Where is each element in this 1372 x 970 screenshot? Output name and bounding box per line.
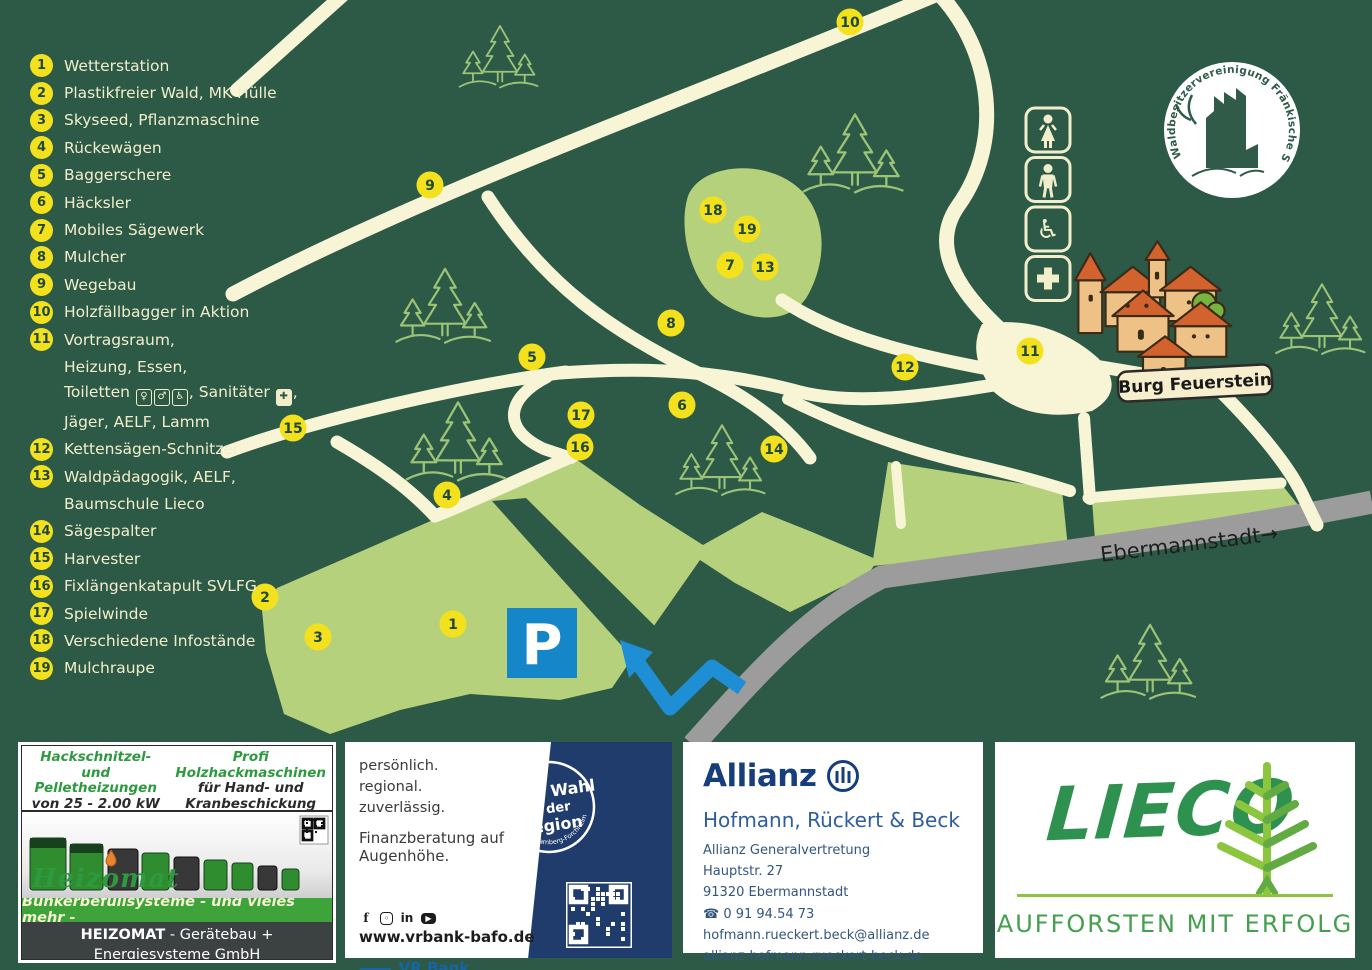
facebook-icon: f	[359, 911, 373, 925]
svg-text:10: 10	[840, 15, 860, 31]
map-marker-13: 13	[752, 254, 779, 281]
heizomat-footer: HEIZOMAT - Gerätebau + Energiesysteme Gm…	[22, 922, 332, 960]
svg-text:13: 13	[755, 260, 774, 276]
legend-item: 9Wegebau	[30, 271, 298, 298]
map-marker-3: 3	[305, 624, 332, 651]
svg-text:4: 4	[442, 488, 452, 504]
map-marker-8: 8	[658, 310, 685, 337]
tree-cluster-icon	[1276, 284, 1364, 354]
legend-item: 7Mobiles Sägewerk	[30, 216, 298, 243]
legend-item: 2Plastikfreier Wald, MK Hülle	[30, 79, 298, 106]
map-marker-12: 12	[892, 354, 919, 381]
map-marker-9: 9	[417, 172, 444, 199]
legend-item-label: Kettensägen-Schnitzer	[64, 440, 239, 458]
legend-marker-number: 6	[30, 191, 53, 214]
first-aid-icon: ✚	[276, 389, 292, 406]
legend-item-label: Baumschule Lieco	[64, 495, 205, 513]
legend-item-label: Wegebau	[64, 276, 137, 294]
legend-item-label: Baggerschere	[64, 166, 171, 184]
legend-marker-number: 2	[30, 82, 53, 105]
legend-marker-number: 9	[30, 273, 53, 296]
legend-item: 13Waldpädagogik, AELF,	[30, 463, 298, 490]
legend-marker-number: 10	[30, 301, 53, 324]
legend-item: 14Sägespalter	[30, 518, 298, 545]
tree-cluster-icon	[676, 425, 764, 495]
heizomat-header: Hackschnitzel- und Pelletheizungen von 2…	[22, 746, 332, 812]
flame-icon	[104, 850, 118, 868]
legend-marker-number: 12	[30, 438, 53, 461]
tree-cluster-icon	[407, 402, 506, 480]
legend-item-label: Fixlängenkatapult SVLFG	[64, 577, 257, 595]
svg-text:1: 1	[448, 617, 458, 633]
legend-item-label: Skyseed, Pflanzmaschine	[64, 111, 260, 129]
heizomat-company-name: HEIZOMAT	[81, 927, 166, 943]
legend-marker-number: 16	[30, 575, 53, 598]
first-aid-icon	[1026, 257, 1070, 301]
svg-text:19: 19	[737, 222, 756, 238]
youtube-icon: ▶	[421, 913, 436, 924]
legend-marker-number: 3	[30, 109, 53, 132]
heizomat-header-left: Hackschnitzel- und Pelletheizungen von 2…	[22, 746, 169, 810]
legend-item: 6Häcksler	[30, 189, 298, 216]
legend-item: 16Fixlängenkatapult SVLFG	[30, 572, 298, 599]
legend-marker-number: 15	[30, 547, 53, 570]
svg-text:8: 8	[666, 316, 676, 332]
legend-item-continuation: Jäger, AELF, Lamm	[30, 408, 298, 435]
svg-text:16: 16	[570, 440, 589, 456]
ad-allianz: Allianz Hofmann, Rückert & Beck Allianz …	[683, 742, 983, 953]
legend: 1Wetterstation2Plastikfreier Wald, MK Hü…	[30, 52, 298, 682]
allianz-logo: Allianz	[703, 758, 963, 794]
allianz-city: 91320 Ebermannstadt	[703, 882, 963, 903]
legend-item: 15Harvester	[30, 545, 298, 572]
map-marker-1: 1	[440, 611, 467, 638]
map-marker-18: 18	[700, 197, 727, 224]
ad-lieco: LIECO AUFFORSTEN MIT ERFOLG	[995, 742, 1355, 958]
heizomat-headline: Pelletheizungen	[28, 781, 163, 797]
instagram-icon: ◦	[380, 912, 393, 925]
svg-text:11: 11	[1020, 344, 1039, 360]
legend-item: 4Rückewägen	[30, 134, 298, 161]
vrbank-logo: VR Bank Bamberg-Forchheim	[359, 960, 549, 970]
svg-text:3: 3	[313, 630, 323, 646]
wheelchair-icon: ♿	[1026, 207, 1070, 251]
map-marker-17: 17	[568, 402, 595, 429]
map-marker-19: 19	[734, 216, 761, 243]
ad-vrbank: persönlich. regional. zuverlässig. Finan…	[345, 742, 672, 958]
legend-marker-number: 1	[30, 54, 53, 77]
legend-marker-number: 13	[30, 465, 53, 488]
allianz-street: Hauptstr. 27	[703, 861, 963, 882]
svg-text:6: 6	[677, 398, 687, 414]
map-marker-7: 7	[717, 252, 744, 279]
wheelchair-icon: ♿	[172, 389, 188, 406]
phone-icon: ☎	[703, 907, 723, 922]
svg-text:7: 7	[725, 258, 735, 274]
vrbank-badge: Erste Wahl in der Region VR Bank Bamberg…	[494, 752, 604, 862]
map-marker-5: 5	[519, 344, 546, 371]
legend-item-label: Harvester	[64, 550, 140, 568]
map-marker-10: 10	[837, 9, 864, 36]
allianz-agency-name: Hofmann, Rückert & Beck	[703, 808, 963, 832]
map-marker-4: 4	[434, 482, 461, 509]
heizomat-header-right: Profi Holzhackmaschinen für Hand- und Kr…	[169, 746, 332, 810]
legend-item-label: Verschiedene Infostände	[64, 632, 255, 650]
heizomat-banner: Bunkerbefüllsysteme - und vieles mehr -	[22, 898, 332, 922]
legend-item: 17Spielwinde	[30, 600, 298, 627]
heizomat-product-image: Heizomat	[22, 812, 332, 898]
lieco-tree-icon	[1207, 748, 1327, 898]
legend-marker-number: 5	[30, 164, 53, 187]
legend-item: 1Wetterstation	[30, 52, 298, 79]
legend-item-label: Häcksler	[64, 194, 131, 212]
legend-marker-number: 17	[30, 602, 53, 625]
svg-text:♿: ♿	[1036, 215, 1059, 245]
vrbank-social-icons: f ◦ in ▶	[359, 911, 549, 925]
map-marker-6: 6	[669, 392, 696, 419]
svg-text:17: 17	[571, 408, 590, 424]
tree-cluster-icon	[1101, 625, 1195, 699]
tree-cluster-icon	[804, 114, 903, 192]
legend-item: 3Skyseed, Pflanzmaschine	[30, 107, 298, 134]
legend-marker-number: 8	[30, 246, 53, 269]
heizomat-subline: für Hand- und	[175, 781, 326, 797]
legend-item-label: Jäger, AELF, Lamm	[64, 413, 210, 431]
heizomat-subline: von 25 - 2.00 kW	[28, 797, 163, 813]
allianz-phone-row: ☎ 0 91 94.54 73	[703, 904, 963, 925]
field-exhibit-blob	[684, 168, 821, 317]
map-marker-11: 11	[1017, 338, 1044, 365]
heizomat-logo: Heizomat	[32, 864, 179, 894]
legend-item-label: Rückewägen	[64, 139, 162, 157]
legend-item: 19Mulchraupe	[30, 655, 298, 682]
legend-item-continuation: Baumschule Lieco	[30, 490, 298, 517]
linkedin-icon: in	[400, 911, 414, 925]
vrbank-website: www.vrbank-bafo.de	[359, 928, 549, 946]
allianz-role: Allianz Generalvertretung	[703, 840, 963, 861]
legend-marker-number: 19	[30, 657, 53, 680]
allianz-emblem-icon	[826, 759, 860, 793]
burg-feuerstein-label: Burg Feuerstein	[1117, 364, 1272, 402]
road-junction	[976, 322, 1111, 415]
map-marker-16: 16	[567, 434, 594, 461]
allianz-website: allianz-hofmann-rueckert-beck.de	[703, 946, 963, 967]
legend-item-continuation: Toiletten ♀♂♿, Sanitäter ✚,	[30, 381, 298, 408]
lieco-slogan: AUFFORSTEN MIT ERFOLG	[995, 910, 1355, 938]
legend-item-label: Mulcher	[64, 248, 126, 266]
legend-item: 10Holzfällbagger in Aktion	[30, 299, 298, 326]
legend-item-label: Holzfällbagger in Aktion	[64, 303, 249, 321]
legend-item: 11Vortragsraum,	[30, 326, 298, 353]
svg-text:5: 5	[527, 350, 537, 366]
legend-item-label: Sägespalter	[64, 522, 156, 540]
female-toilet-icon	[1026, 108, 1070, 152]
female-toilet-icon: ♀	[136, 389, 152, 406]
field-main	[262, 457, 878, 734]
legend-marker-number: 14	[30, 520, 53, 543]
legend-item: 8Mulcher	[30, 244, 298, 271]
legend-marker-number: 18	[30, 629, 53, 652]
tree-cluster-icon	[396, 269, 490, 343]
legend-item-label: Mobiles Sägewerk	[64, 221, 204, 239]
tree-cluster-icon	[460, 26, 538, 88]
allianz-email: hofmann.rueckert.beck@allianz.de	[703, 925, 963, 946]
vrbank-qr-code	[566, 882, 632, 948]
legend-marker-number: 11	[30, 328, 53, 351]
legend-item-label: Plastikfreier Wald, MK Hülle	[64, 84, 277, 102]
legend-item-label: Spielwinde	[64, 605, 148, 623]
allianz-contact-block: Allianz Generalvertretung Hauptstr. 27 9…	[703, 840, 963, 967]
lieco-divider	[1017, 894, 1333, 897]
event-map-poster: ♿	[0, 0, 1372, 970]
map-marker-14: 14	[761, 436, 788, 463]
legend-item: 12Kettensägen-Schnitzer	[30, 435, 298, 462]
allianz-wordmark: Allianz	[703, 758, 816, 794]
male-toilet-icon	[1026, 158, 1070, 202]
svg-text:18: 18	[703, 203, 722, 219]
heizomat-headline: Profi Holzhackmaschinen	[175, 750, 326, 781]
heizomat-headline: Hackschnitzel- und	[28, 750, 163, 781]
parking-sign: P	[507, 608, 577, 678]
legend-item-label: Toiletten ♀♂♿, Sanitäter ✚,	[64, 383, 298, 406]
ad-heizomat: Hackschnitzel- und Pelletheizungen von 2…	[18, 742, 336, 963]
allianz-phone: 0 91 94.54 73	[723, 907, 814, 922]
svg-text:12: 12	[895, 360, 914, 376]
legend-item-label: Heizung, Essen,	[64, 358, 187, 376]
svg-text:P: P	[521, 613, 562, 678]
legend-item-label: Vortragsraum,	[64, 331, 175, 349]
heizomat-qr-code	[300, 816, 328, 844]
svg-text:9: 9	[425, 178, 435, 194]
legend-item-label: Mulchraupe	[64, 659, 155, 677]
vrbank-name: VR Bank	[399, 960, 549, 970]
heizomat-subline: Kranbeschickung	[175, 797, 326, 813]
male-toilet-icon: ♂	[154, 389, 170, 406]
facility-icons: ♿	[1026, 108, 1070, 301]
legend-item-continuation: Heizung, Essen,	[30, 353, 298, 380]
legend-item-label: Waldpädagogik, AELF,	[64, 468, 236, 486]
legend-item-label: Wetterstation	[64, 57, 169, 75]
legend-item: 18Verschiedene Infostände	[30, 627, 298, 654]
legend-item: 5Baggerschere	[30, 162, 298, 189]
svg-text:14: 14	[764, 442, 784, 458]
legend-marker-number: 7	[30, 219, 53, 242]
legend-marker-number: 4	[30, 136, 53, 159]
